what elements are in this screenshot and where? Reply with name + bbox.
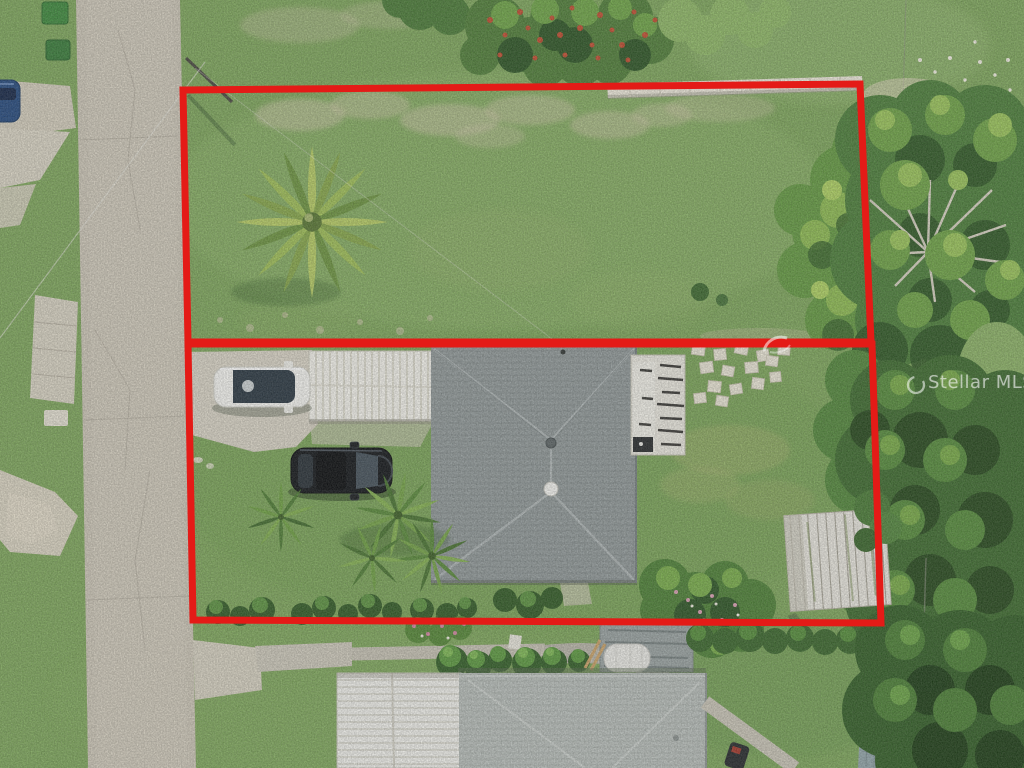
aerial-photo: Stellar MLS (0, 0, 1024, 768)
aerial-photo-canvas (0, 0, 1024, 768)
